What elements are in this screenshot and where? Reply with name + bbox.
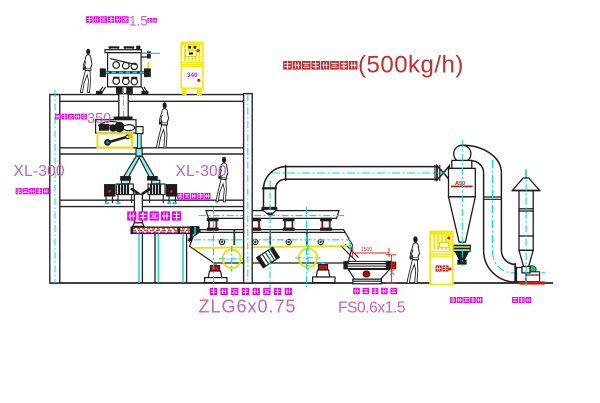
svg-text:350: 350 — [87, 111, 111, 127]
svg-text:XL-300: XL-300 — [176, 163, 227, 180]
svg-text:XL-300: XL-300 — [14, 163, 65, 180]
svg-text:A50: A50 — [455, 181, 465, 187]
svg-text:FS0.6x1.5: FS0.6x1.5 — [338, 300, 405, 317]
svg-text:1.5: 1.5 — [129, 14, 148, 29]
svg-text:ZLG6x0.75: ZLG6x0.75 — [199, 297, 297, 317]
svg-text:541: 541 — [390, 267, 396, 276]
svg-text:(500kg/h): (500kg/h) — [358, 52, 464, 79]
svg-text:1500: 1500 — [361, 247, 372, 253]
svg-text:340: 340 — [187, 72, 198, 79]
